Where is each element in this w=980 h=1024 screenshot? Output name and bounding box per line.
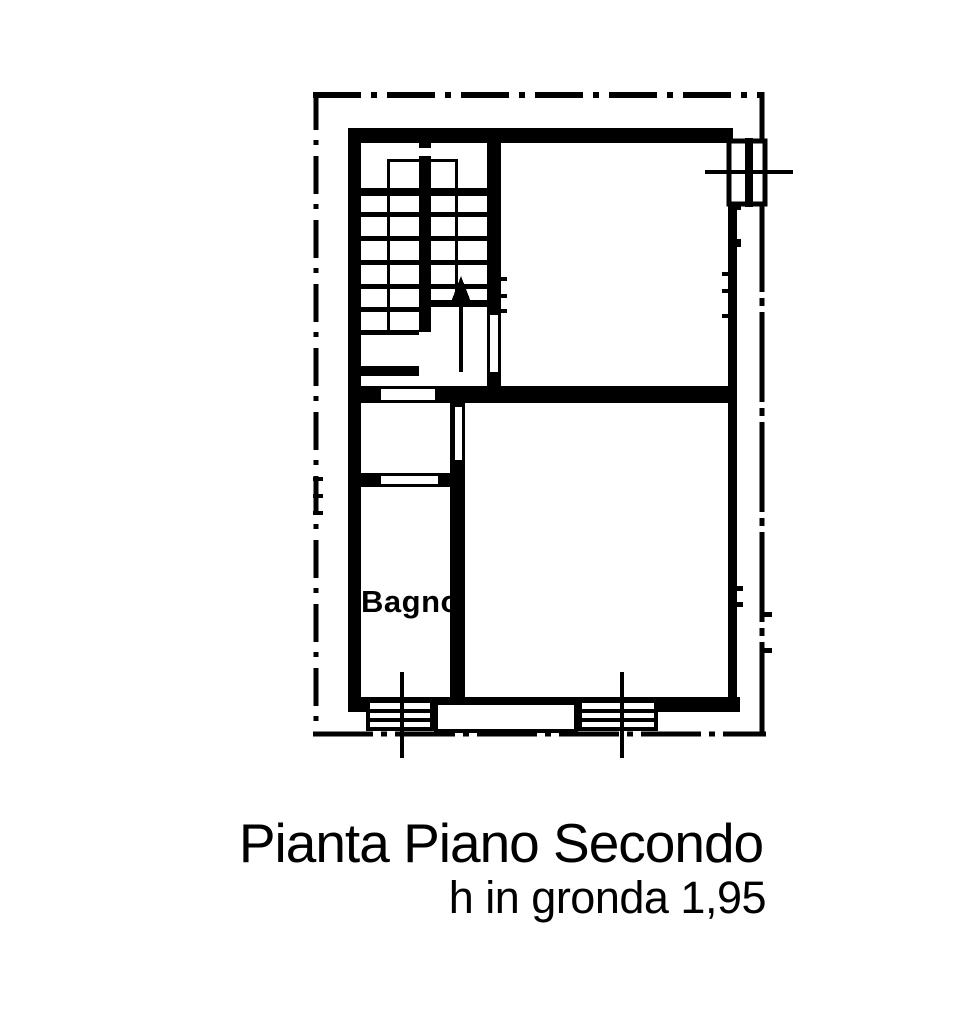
plan-title: Pianta Piano Secondo — [239, 812, 763, 874]
balcony-threshold — [436, 703, 576, 731]
stairwell-line-west — [387, 159, 390, 330]
door-opening-hall — [381, 389, 435, 400]
wall-north — [348, 128, 733, 143]
dimension-line-south-right — [620, 672, 624, 758]
window-south-right — [580, 701, 656, 729]
stair-center-wall-gap — [419, 148, 431, 156]
plan-subtitle: h in gronda 1,95 — [449, 872, 766, 923]
stair-direction-line — [459, 302, 463, 372]
wall-west — [348, 128, 361, 712]
door-opening-stair — [490, 315, 498, 372]
stairwell-line-north — [387, 159, 458, 162]
floor-plan-page: Bagno Pianta Piano Secondo h in gronda 1… — [0, 0, 980, 1024]
room-label-bathroom: Bagno — [361, 584, 460, 619]
floor-plan-drawing: Bagno Pianta Piano Secondo h in gronda 1… — [0, 0, 980, 1024]
window-south-right-bar1 — [578, 709, 658, 713]
stair-center-wall — [419, 143, 431, 332]
door-opening-bathroom — [381, 476, 438, 484]
window-south-right-bar2 — [578, 718, 658, 722]
wall-east — [728, 143, 737, 697]
south-windows — [366, 701, 658, 731]
door-opening-main-room — [455, 407, 462, 460]
stair-landing-edge-top — [361, 188, 487, 196]
dimension-line-south-left — [400, 672, 404, 758]
dimension-line-east — [705, 170, 793, 174]
